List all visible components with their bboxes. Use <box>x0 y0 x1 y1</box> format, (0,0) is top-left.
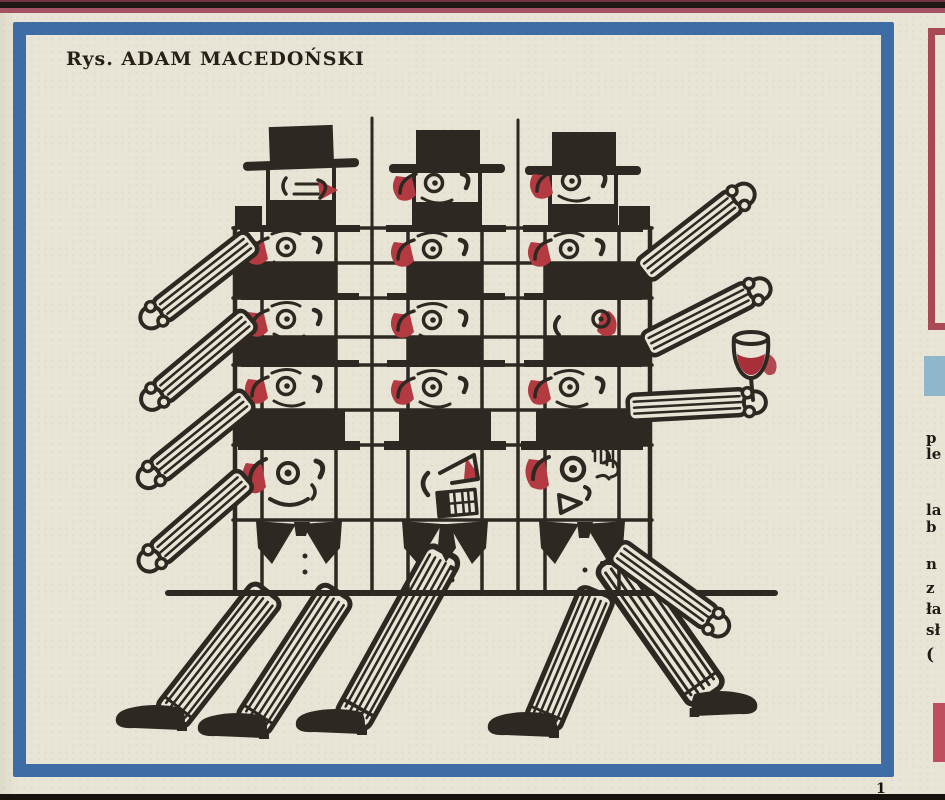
cartoon-illustration <box>0 0 945 800</box>
article-text-fragment: n <box>926 557 937 572</box>
hat-checkerboard <box>235 200 650 450</box>
scanned-page: Rys. ADAM MACEDOŃSKI <box>0 0 945 800</box>
article-text-fragment: la <box>926 503 941 518</box>
big-face-gritting-teeth <box>423 455 480 517</box>
article-text-fragment: z <box>926 581 935 596</box>
page-bottom-edge-bar <box>0 794 945 800</box>
top-face-right-looking <box>283 178 338 200</box>
big-face-monocle <box>525 447 618 513</box>
article-text-fragment: sł <box>926 623 940 638</box>
adjacent-article-box <box>928 28 945 330</box>
section-divider-bar <box>924 356 945 396</box>
big-faces-row <box>242 447 618 517</box>
article-text-fragment: b <box>926 520 937 535</box>
article-text-fragment: p <box>926 431 937 446</box>
face-grid <box>245 231 617 408</box>
article-text-fragment: ( <box>926 648 934 663</box>
red-column-box <box>933 703 945 762</box>
article-text-fragment: le <box>926 447 941 462</box>
right-arms <box>607 176 776 643</box>
big-face-smiling <box>242 459 322 505</box>
article-text-fragment: ła <box>926 602 942 617</box>
